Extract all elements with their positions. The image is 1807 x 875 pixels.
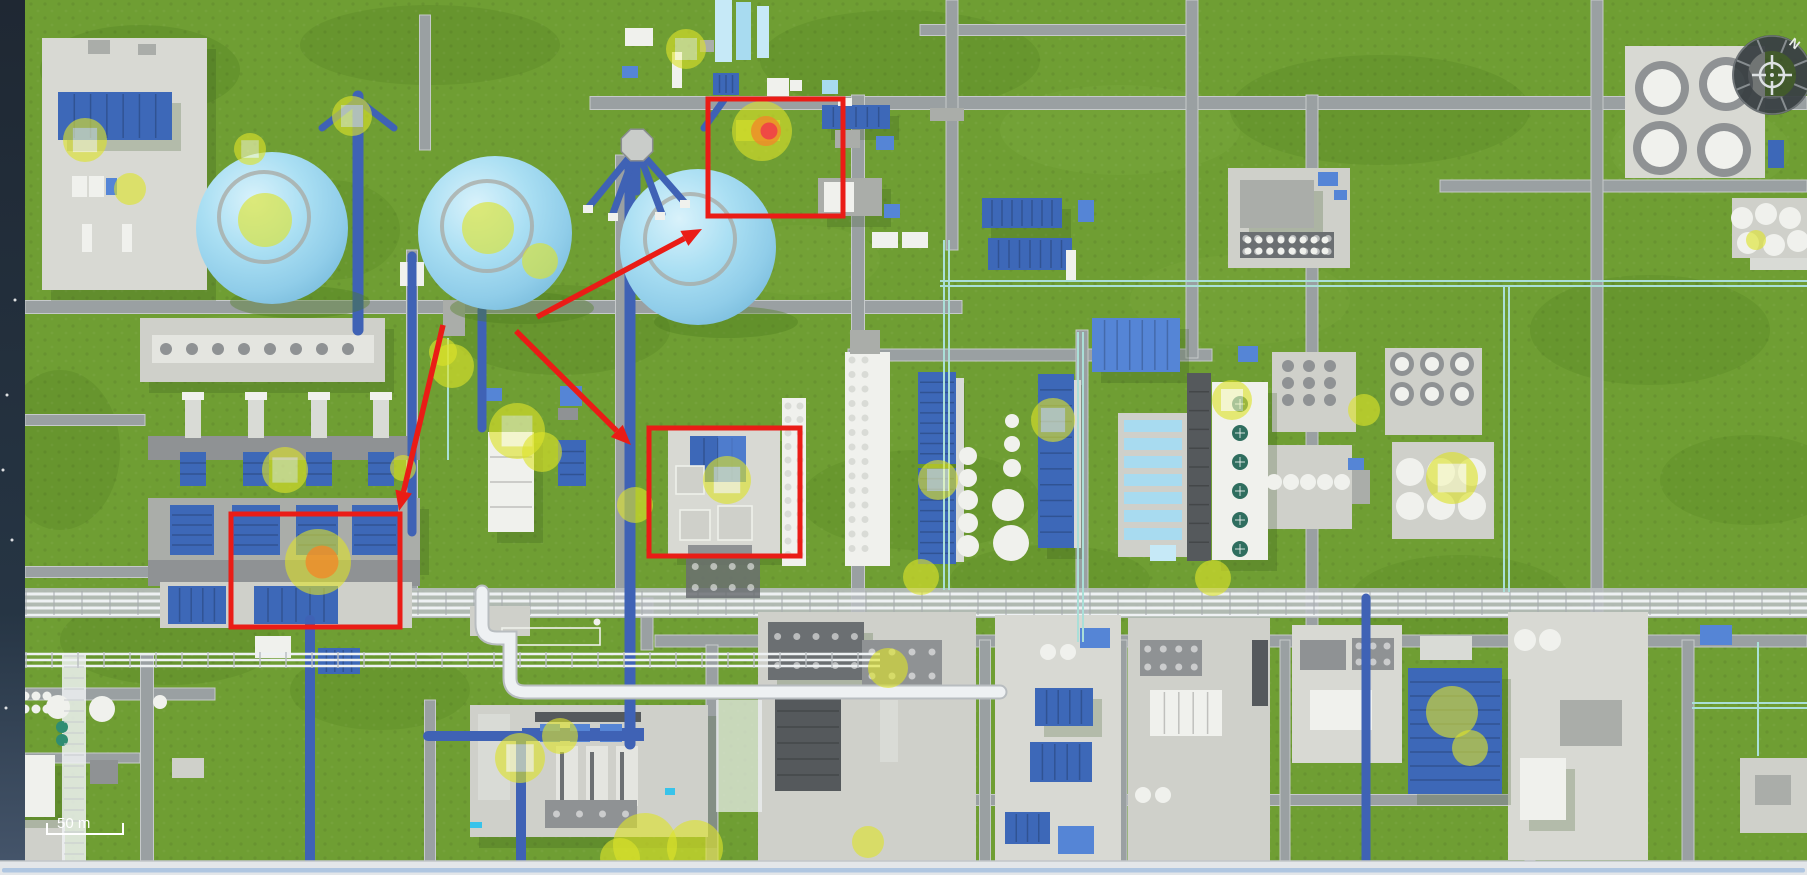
storage-tank [959,447,977,465]
leak-hotspot[interactable] [732,101,792,161]
storage-tank [89,696,115,722]
building [768,622,864,680]
building [560,752,564,800]
building [736,2,751,60]
storage-tank [1643,69,1681,107]
sensor-marker[interactable] [522,432,562,472]
sensor-marker[interactable] [666,29,706,69]
building [956,378,964,562]
building [1252,640,1268,706]
concrete-pad [676,466,704,494]
building [716,700,762,812]
water-basin [1124,510,1182,522]
building [82,224,92,252]
building [902,232,928,248]
water-basin [1124,420,1182,432]
concrete-pad [172,758,204,778]
sensor-marker[interactable] [462,202,514,254]
building [1030,742,1092,782]
sensor-marker[interactable] [495,733,545,783]
storage-tank [594,619,601,626]
storage-tank [1755,203,1777,225]
sensor-marker[interactable] [63,118,107,162]
building [622,66,638,78]
building [1058,826,1094,854]
road [1186,0,1198,358]
building [180,452,206,486]
building [486,388,502,401]
building [884,204,900,218]
road [425,700,436,875]
building [138,44,156,55]
storage-tank [1155,787,1171,803]
storage-tank [958,490,978,510]
building [757,6,769,58]
storage-tank [958,513,978,533]
sensor-marker[interactable] [868,648,908,688]
storage-tank [1004,436,1020,452]
building [558,408,578,420]
sensor-marker[interactable] [1746,230,1766,250]
road [1682,640,1694,875]
building [620,752,624,800]
water-basin [1124,456,1182,468]
sensor-marker[interactable] [1452,730,1488,766]
building [1352,470,1370,504]
building [1078,200,1094,222]
sensor-marker[interactable] [114,173,146,205]
sensor-marker[interactable] [234,133,266,165]
storage-tank [1005,414,1019,428]
building [1150,690,1222,736]
road [141,655,154,875]
building [1334,190,1347,200]
storage-tank [993,525,1029,561]
storage-tank [1040,644,1056,660]
building [715,0,732,62]
building [88,40,110,54]
sensor-marker[interactable] [522,243,558,279]
sensor-marker[interactable] [703,456,751,504]
building [1318,172,1338,186]
storage-tank [1641,129,1679,167]
building [1035,688,1093,726]
flare-tower [621,129,652,160]
building [665,788,675,795]
building [1750,258,1807,270]
concrete-pad [42,38,207,290]
sensor-marker[interactable] [1195,560,1231,596]
building [1080,628,1110,648]
building [590,752,594,800]
sensor-marker[interactable] [918,460,958,500]
building [89,176,104,197]
storage-tank [1763,234,1785,256]
building [790,80,802,91]
sensor-marker[interactable] [542,718,578,754]
sensor-marker[interactable] [262,447,308,493]
building [168,586,226,624]
building [1140,640,1202,676]
storage-tank [153,695,167,709]
building [1300,640,1346,670]
building [470,822,482,828]
building [876,136,894,150]
sensor-marker[interactable] [1348,394,1380,426]
building [306,452,332,486]
concrete-pad [680,510,710,540]
sensor-marker[interactable] [852,826,884,858]
building [1560,700,1622,746]
building [152,335,374,363]
scale-bar-label: 50 m [57,815,90,832]
sensor-marker[interactable] [1426,452,1478,504]
building [170,505,214,555]
building [122,224,132,252]
building [616,746,638,806]
sensor-marker[interactable] [332,96,372,136]
building [918,372,956,464]
storage-tank [1705,131,1743,169]
building [1768,140,1784,168]
building [822,80,838,94]
water-basin [1124,438,1182,450]
building [850,330,880,354]
road [1280,640,1290,875]
building [1238,346,1258,362]
storage-tank [1539,629,1561,651]
road [1440,180,1807,192]
concrete-pad [718,506,752,540]
road [980,640,991,875]
building [1240,232,1334,258]
storage-tank [1779,207,1801,229]
road [920,25,1190,36]
building [1420,636,1472,660]
building [835,130,860,148]
building [930,108,964,121]
side-app-strip [0,0,25,875]
building [1066,250,1076,280]
storage-tank [959,469,977,487]
sensor-marker[interactable] [238,193,292,247]
road [420,15,431,150]
water-basin [1124,528,1182,540]
building [625,28,653,46]
storage-tank [1135,787,1151,803]
map-canvas[interactable]: N50 m [0,0,1807,875]
building [880,700,898,762]
water-basin [1124,474,1182,486]
storage-tank [1003,459,1021,477]
building [62,655,86,873]
building [1240,180,1314,228]
building [1520,758,1566,820]
plant-map-view: N50 m [0,0,1807,875]
storage-tank [1731,207,1753,229]
sensor-marker[interactable] [1212,380,1252,420]
building [90,760,118,784]
storage-tank [1060,644,1076,660]
water-basin [1124,492,1182,504]
building [824,182,854,212]
road [946,0,958,250]
storage-tank [957,535,979,557]
storage-tank [1514,629,1536,651]
building [556,746,578,806]
building [767,78,789,96]
storage-tank [992,489,1024,521]
sensor-marker[interactable] [1031,398,1075,442]
road [1591,0,1603,645]
leak-hotspot[interactable] [285,529,351,595]
building [1348,458,1364,470]
sensor-marker[interactable] [903,559,939,595]
building [1755,775,1791,805]
storage-sphere[interactable] [620,169,776,325]
building [872,232,898,248]
building [72,176,87,197]
building [586,746,608,806]
building [1700,625,1732,645]
road [25,415,145,426]
building [686,556,760,598]
